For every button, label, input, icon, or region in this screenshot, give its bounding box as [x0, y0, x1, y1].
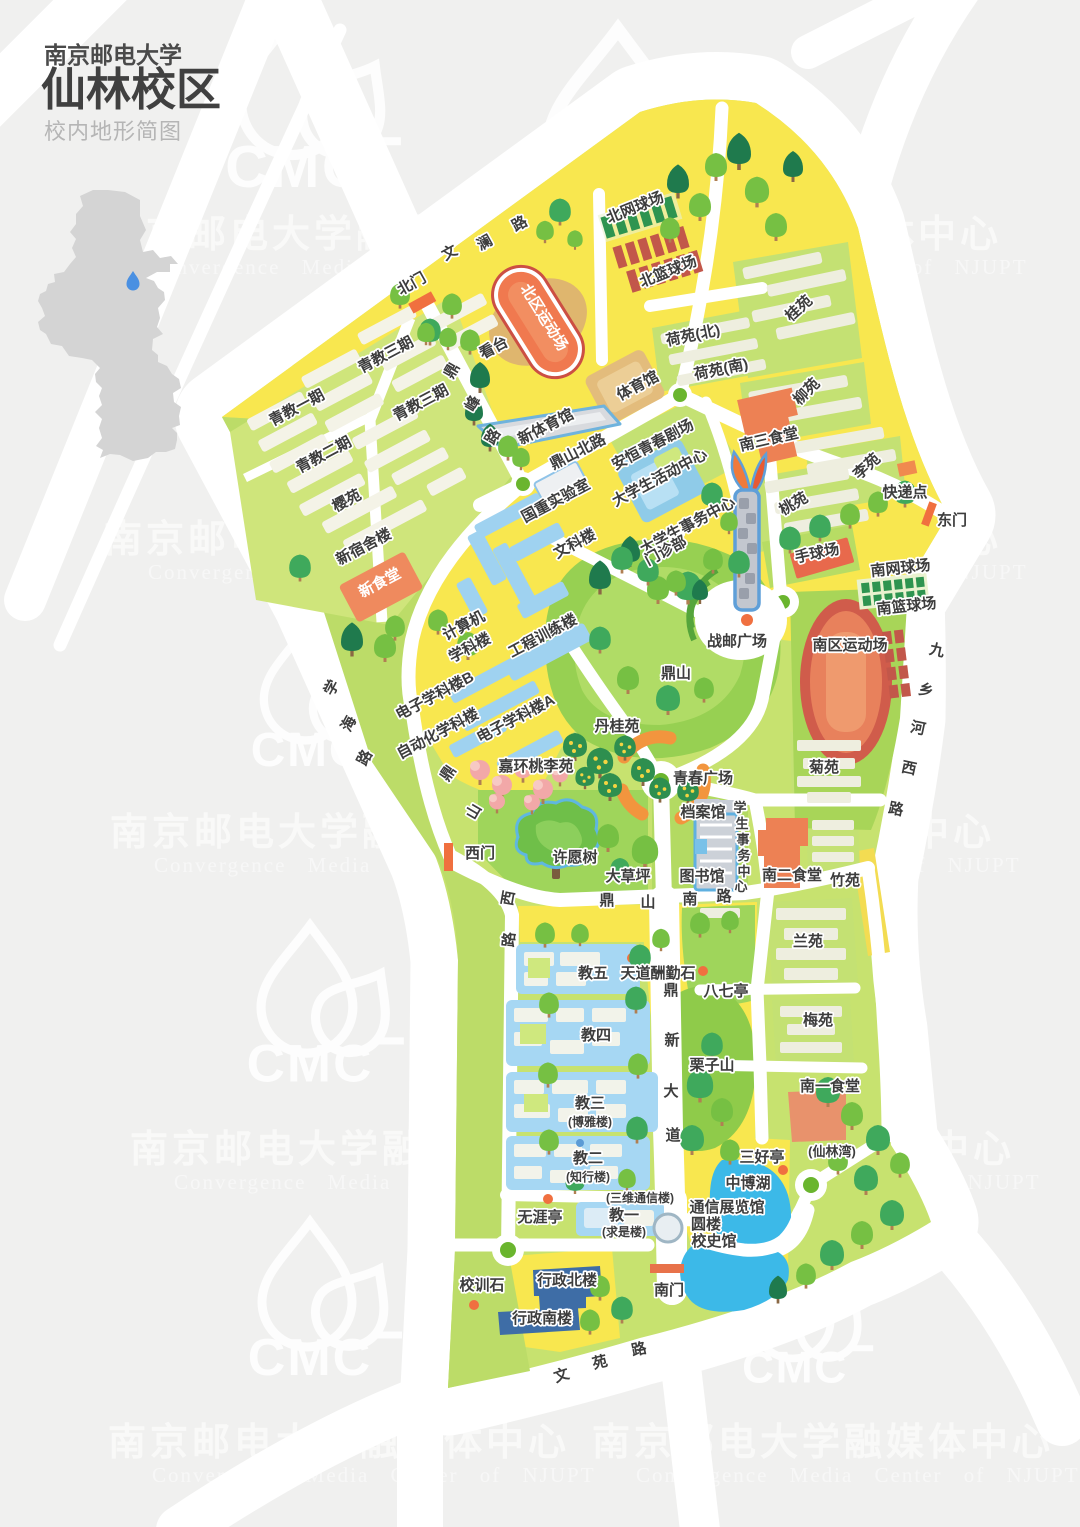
- svg-text:南: 南: [682, 890, 697, 908]
- svg-text:南一食堂: 南一食堂: [800, 1077, 860, 1095]
- svg-text:兰苑: 兰苑: [793, 932, 823, 950]
- svg-text:CMC: CMC: [225, 133, 367, 200]
- svg-text:事: 事: [736, 832, 749, 847]
- svg-text:嘉环桃李苑: 嘉环桃李苑: [497, 757, 573, 775]
- svg-text:八七亭: 八七亭: [702, 982, 748, 1000]
- svg-text:通信展览馆: 通信展览馆: [689, 1198, 764, 1216]
- svg-text:路: 路: [716, 887, 732, 905]
- svg-text:山: 山: [640, 894, 655, 911]
- svg-text:档案馆: 档案馆: [680, 803, 725, 821]
- svg-text:南门: 南门: [654, 1281, 684, 1299]
- svg-text:校训石: 校训石: [459, 1276, 504, 1294]
- svg-text:栗子山: 栗子山: [689, 1057, 734, 1074]
- svg-text:中: 中: [737, 864, 750, 879]
- svg-text:路: 路: [499, 930, 518, 948]
- svg-text:南区运动场: 南区运动场: [812, 636, 887, 654]
- svg-text:仙林校区: 仙林校区: [41, 64, 221, 115]
- svg-text:CMC: CMC: [248, 1329, 372, 1387]
- svg-text:中博湖: 中博湖: [725, 1174, 770, 1192]
- svg-text:鼎: 鼎: [663, 981, 678, 999]
- svg-text:大草坪: 大草坪: [605, 867, 650, 885]
- svg-text:心: 心: [734, 879, 747, 894]
- svg-text:(求是楼): (求是楼): [602, 1224, 646, 1239]
- svg-text:Convergence Media Center of NJ: Convergence Media Center of NJUPT: [152, 1463, 596, 1487]
- svg-text:南二食堂: 南二食堂: [762, 866, 822, 884]
- svg-text:行政南楼: 行政南楼: [511, 1309, 572, 1327]
- svg-text:鼎: 鼎: [599, 891, 614, 909]
- svg-text:快递点: 快递点: [882, 483, 927, 501]
- svg-text:务: 务: [737, 848, 751, 863]
- svg-text:南京邮电大学融媒体中心: 南京邮电大学融媒体中心: [108, 1421, 570, 1464]
- svg-text:(知行楼): (知行楼): [566, 1169, 610, 1184]
- svg-text:CMC: CMC: [742, 1343, 848, 1392]
- svg-text:道: 道: [665, 1126, 680, 1144]
- svg-text:大: 大: [663, 1082, 678, 1100]
- svg-text:图书馆: 图书馆: [679, 867, 724, 885]
- svg-text:西门: 西门: [465, 844, 495, 862]
- svg-text:(三维通信楼): (三维通信楼): [606, 1190, 674, 1205]
- svg-text:(仙林湾): (仙林湾): [808, 1144, 856, 1159]
- svg-text:菊苑: 菊苑: [809, 758, 839, 776]
- svg-text:战邮广场: 战邮广场: [707, 632, 767, 650]
- svg-text:丹桂苑: 丹桂苑: [594, 717, 639, 735]
- svg-text:教一: 教一: [608, 1206, 639, 1224]
- svg-text:校内地形简图: 校内地形简图: [44, 119, 182, 144]
- svg-text:(博雅楼): (博雅楼): [568, 1114, 612, 1129]
- svg-text:教二: 教二: [572, 1149, 603, 1167]
- svg-text:新: 新: [664, 1031, 679, 1049]
- svg-text:东门: 东门: [937, 511, 967, 529]
- svg-text:CMC: CMC: [247, 1035, 374, 1094]
- svg-text:Convergence Media Center of NJ: Convergence Media Center of NJUPT: [636, 1463, 1080, 1487]
- svg-text:许愿树: 许愿树: [552, 848, 597, 866]
- svg-text:教三: 教三: [574, 1094, 605, 1112]
- svg-text:青春广场: 青春广场: [673, 769, 733, 787]
- svg-text:行政北楼: 行政北楼: [536, 1271, 597, 1289]
- svg-text:无涯亭: 无涯亭: [516, 1208, 562, 1226]
- svg-text:圆楼: 圆楼: [691, 1215, 721, 1233]
- svg-text:梅苑: 梅苑: [803, 1011, 833, 1029]
- svg-text:学: 学: [733, 800, 746, 815]
- svg-text:教五: 教五: [577, 964, 608, 982]
- svg-text:三好亭: 三好亭: [739, 1148, 784, 1166]
- svg-text:鼎山: 鼎山: [661, 664, 691, 682]
- svg-text:南京邮电大学融媒体中心: 南京邮电大学融媒体中心: [592, 1421, 1054, 1464]
- svg-text:生: 生: [735, 816, 748, 831]
- svg-text:天道酬勤石: 天道酬勤石: [620, 964, 695, 982]
- svg-text:校史馆: 校史馆: [691, 1232, 736, 1250]
- svg-text:竹苑: 竹苑: [829, 871, 860, 889]
- svg-text:教四: 教四: [580, 1026, 611, 1044]
- svg-text:西: 西: [499, 889, 518, 907]
